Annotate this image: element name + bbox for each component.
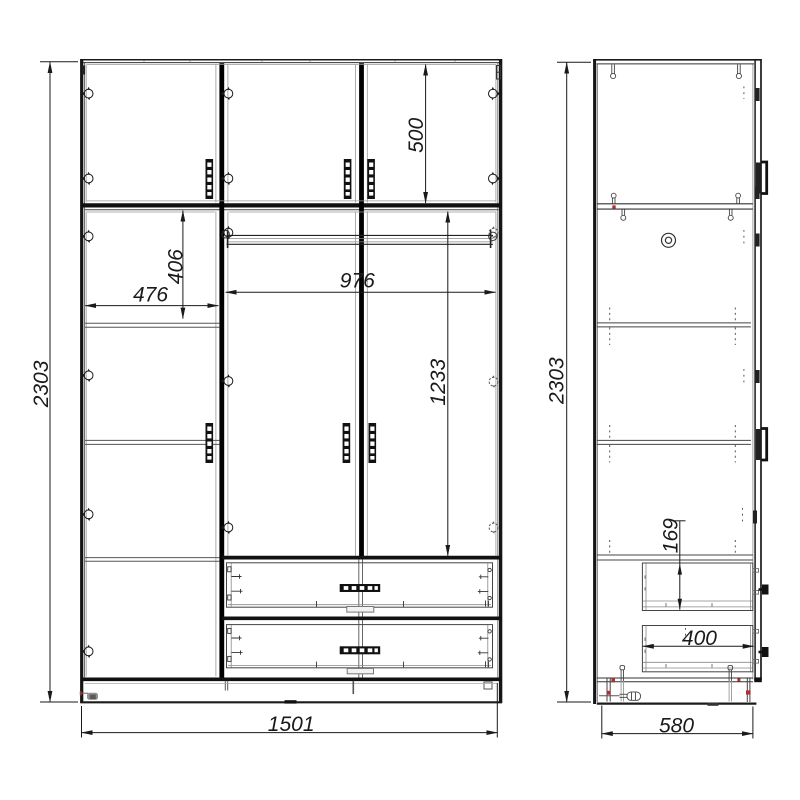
svg-text:476: 476 xyxy=(133,283,168,306)
svg-text:500: 500 xyxy=(405,118,428,153)
svg-text:406: 406 xyxy=(165,249,188,284)
svg-text:400: 400 xyxy=(682,627,717,650)
svg-text:169: 169 xyxy=(660,518,683,553)
svg-text:580: 580 xyxy=(659,715,694,738)
svg-text:1233: 1233 xyxy=(427,359,450,406)
svg-text:1501: 1501 xyxy=(268,713,315,736)
svg-text:976: 976 xyxy=(340,269,375,292)
svg-text:2303: 2303 xyxy=(30,360,53,408)
svg-text:2303: 2303 xyxy=(545,357,568,405)
